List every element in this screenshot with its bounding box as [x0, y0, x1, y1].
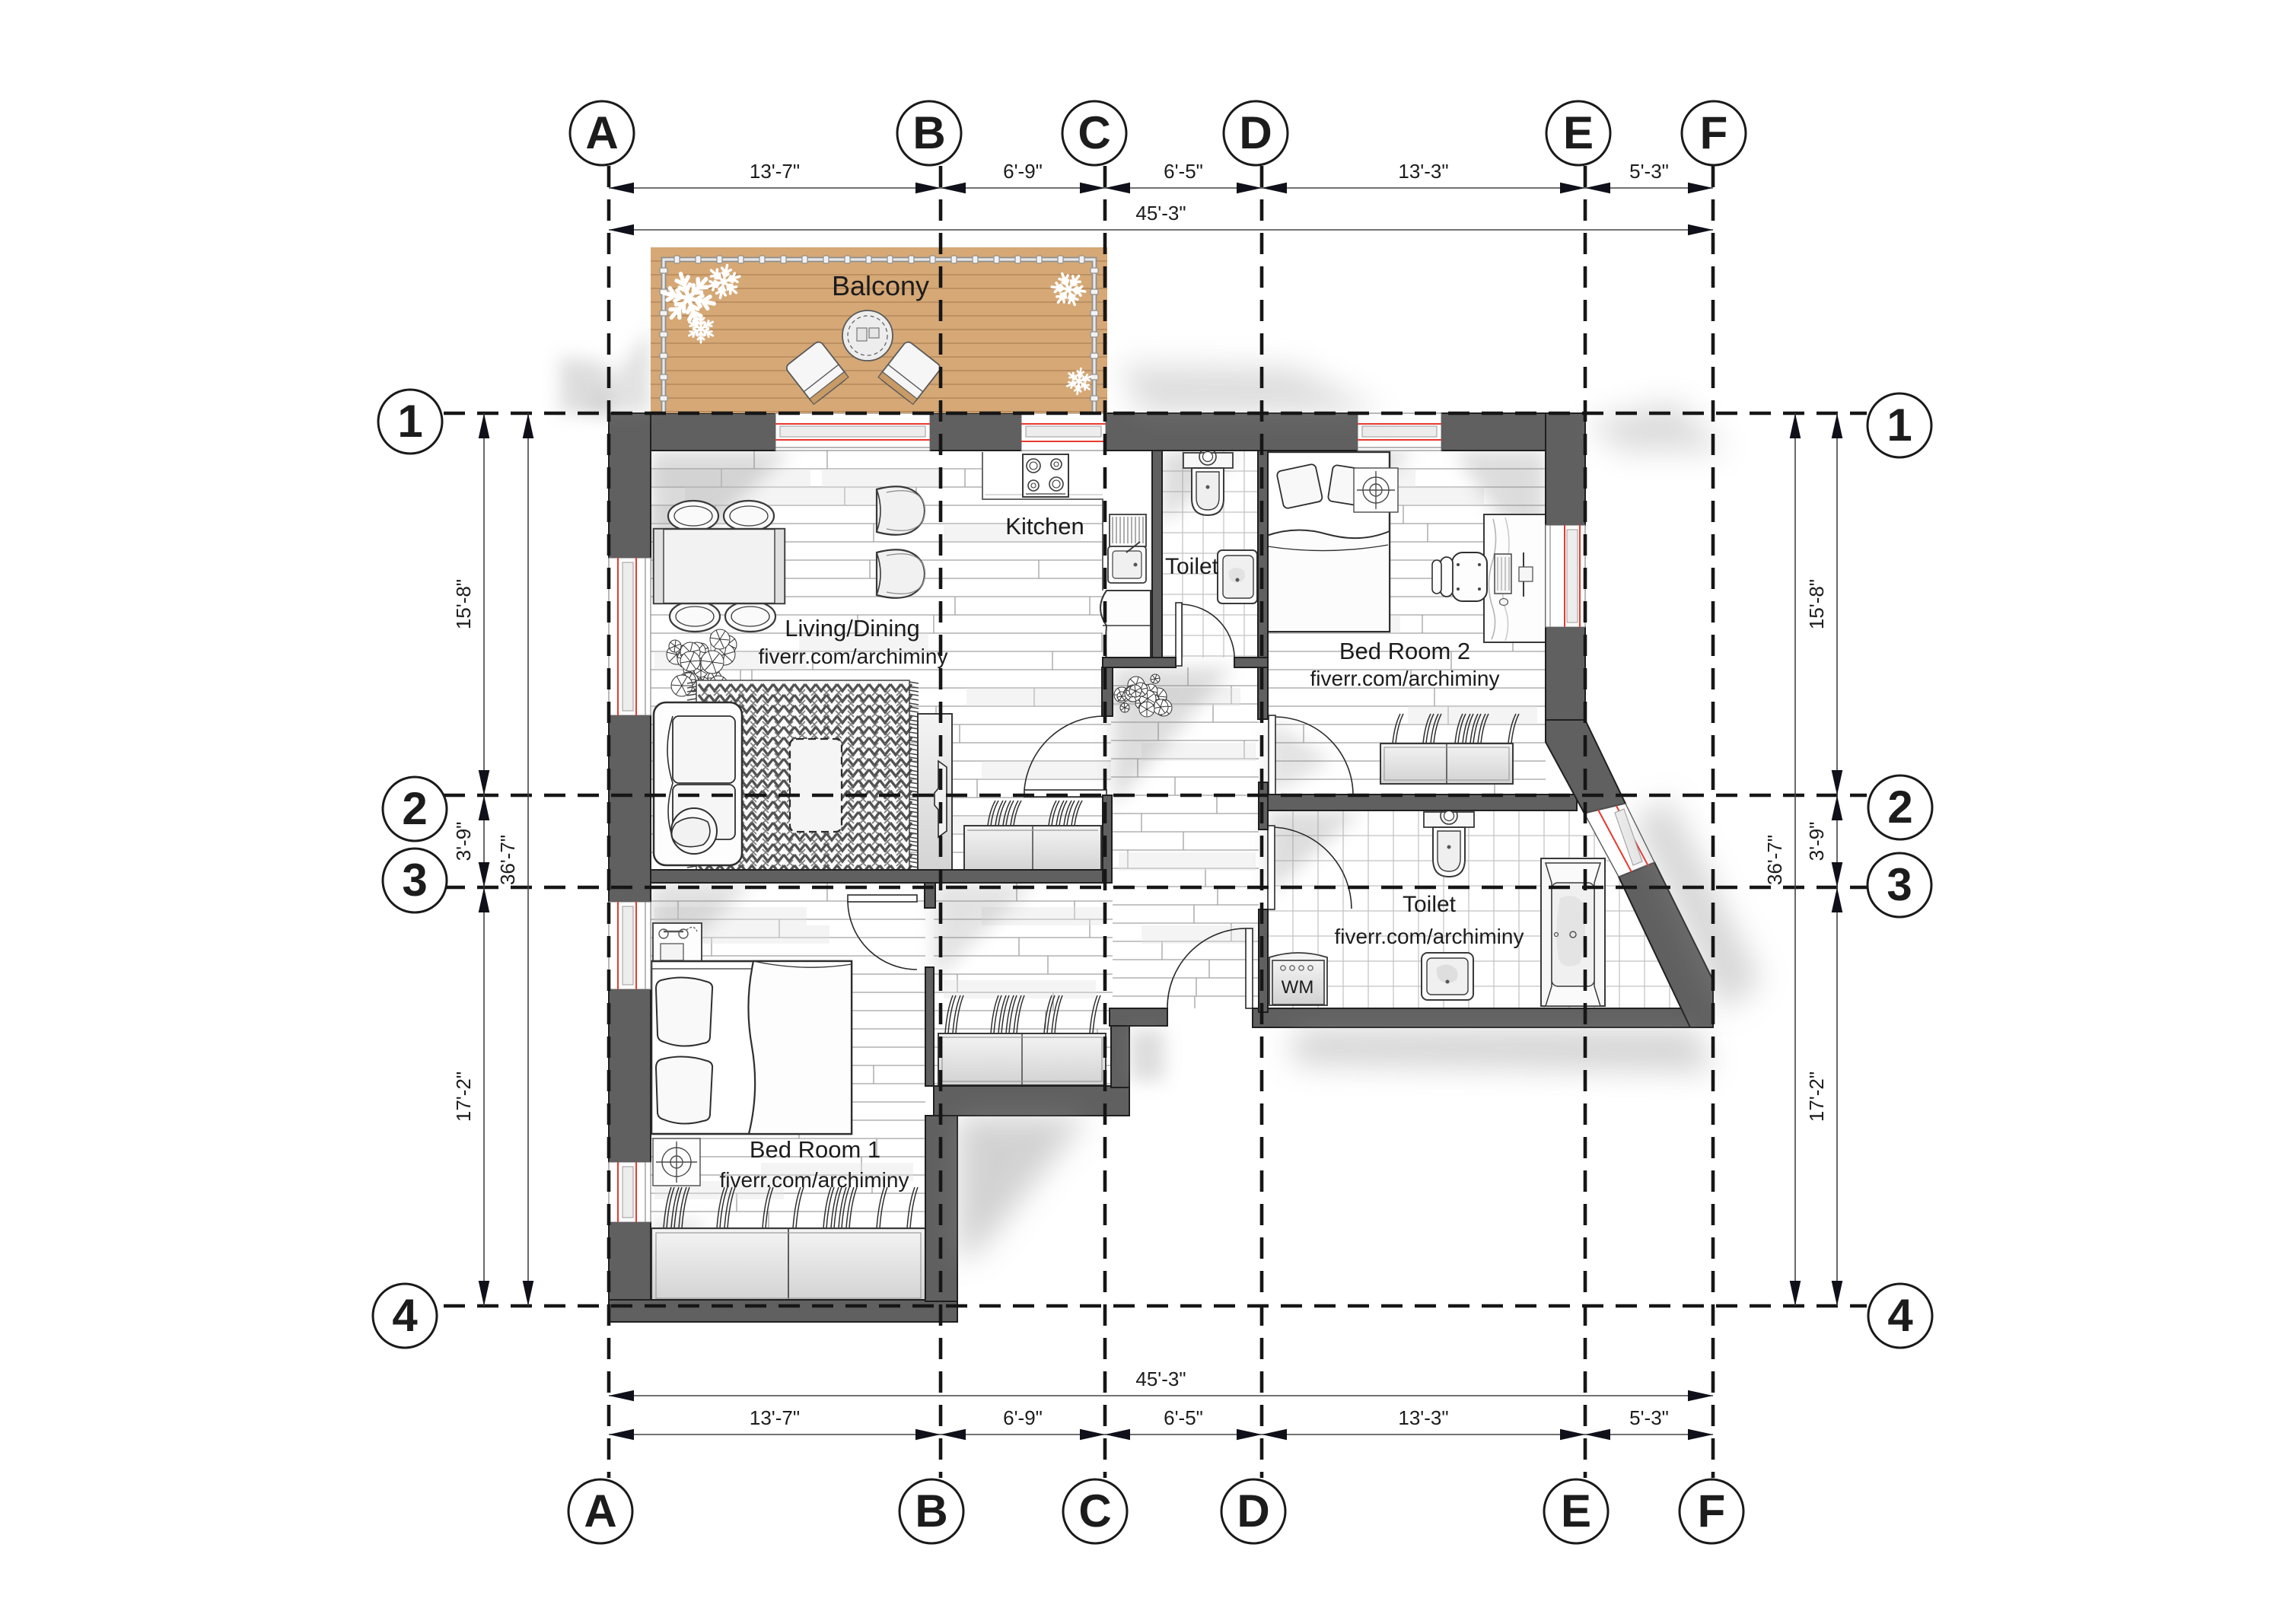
svg-text:A: A	[585, 107, 618, 158]
svg-text:45'-3": 45'-3"	[1135, 1368, 1186, 1390]
svg-text:5'-3": 5'-3"	[1629, 160, 1669, 183]
svg-text:fiverr.com/archiminy: fiverr.com/archiminy	[1310, 667, 1500, 690]
svg-text:Bed Room 1: Bed Room 1	[750, 1136, 880, 1163]
svg-text:2: 2	[402, 783, 427, 834]
svg-text:A: A	[584, 1485, 616, 1536]
svg-text:Toilet: Toilet	[1165, 554, 1219, 579]
svg-text:17'-2": 17'-2"	[1805, 1072, 1828, 1122]
svg-text:E: E	[1561, 1485, 1591, 1536]
svg-text:D: D	[1237, 1485, 1269, 1536]
svg-text:Balcony: Balcony	[832, 270, 929, 301]
svg-text:4: 4	[1887, 1290, 1913, 1341]
svg-text:Kitchen: Kitchen	[1005, 513, 1084, 540]
svg-text:Toilet: Toilet	[1403, 892, 1457, 917]
svg-text:Living/Dining: Living/Dining	[785, 615, 920, 642]
svg-text:B: B	[915, 1485, 947, 1536]
svg-text:E: E	[1563, 107, 1594, 158]
svg-text:fiverr.com/archiminy: fiverr.com/archiminy	[1335, 925, 1524, 948]
svg-text:13'-3": 13'-3"	[1398, 1406, 1448, 1429]
svg-text:36'-7": 36'-7"	[1763, 835, 1786, 885]
svg-text:F: F	[1698, 1485, 1726, 1536]
svg-text:fiverr.com/archiminy: fiverr.com/archiminy	[759, 645, 948, 668]
svg-text:6'-5": 6'-5"	[1164, 1406, 1203, 1429]
svg-text:Bed Room 2: Bed Room 2	[1339, 638, 1470, 664]
svg-text:6'-5": 6'-5"	[1164, 160, 1203, 183]
svg-text:1: 1	[1887, 400, 1912, 451]
svg-text:1: 1	[397, 396, 422, 447]
svg-text:B: B	[912, 107, 945, 158]
svg-text:36'-7": 36'-7"	[496, 835, 519, 885]
svg-text:4: 4	[392, 1290, 418, 1341]
svg-text:6'-9": 6'-9"	[1003, 1406, 1043, 1429]
svg-text:13'-7": 13'-7"	[750, 1406, 800, 1429]
svg-text:13'-7": 13'-7"	[750, 160, 800, 183]
svg-text:3: 3	[1887, 859, 1912, 910]
svg-text:13'-3": 13'-3"	[1398, 160, 1448, 183]
svg-text:fiverr.com/archiminy: fiverr.com/archiminy	[720, 1168, 909, 1192]
svg-text:15'-8": 15'-8"	[1805, 579, 1828, 629]
svg-text:45'-3": 45'-3"	[1135, 202, 1186, 224]
svg-text:3'-9": 3'-9"	[452, 822, 475, 861]
svg-text:17'-2": 17'-2"	[452, 1072, 475, 1122]
svg-text:3: 3	[402, 855, 427, 906]
svg-text:F: F	[1700, 107, 1728, 158]
svg-text:D: D	[1239, 107, 1272, 158]
svg-text:C: C	[1078, 107, 1110, 158]
svg-text:6'-9": 6'-9"	[1003, 160, 1043, 183]
svg-text:2: 2	[1887, 782, 1912, 833]
svg-text:WM: WM	[1282, 977, 1314, 998]
svg-text:5'-3": 5'-3"	[1629, 1406, 1669, 1429]
svg-text:3'-9": 3'-9"	[1805, 822, 1828, 861]
svg-text:C: C	[1078, 1485, 1111, 1536]
svg-text:15'-8": 15'-8"	[452, 579, 475, 629]
